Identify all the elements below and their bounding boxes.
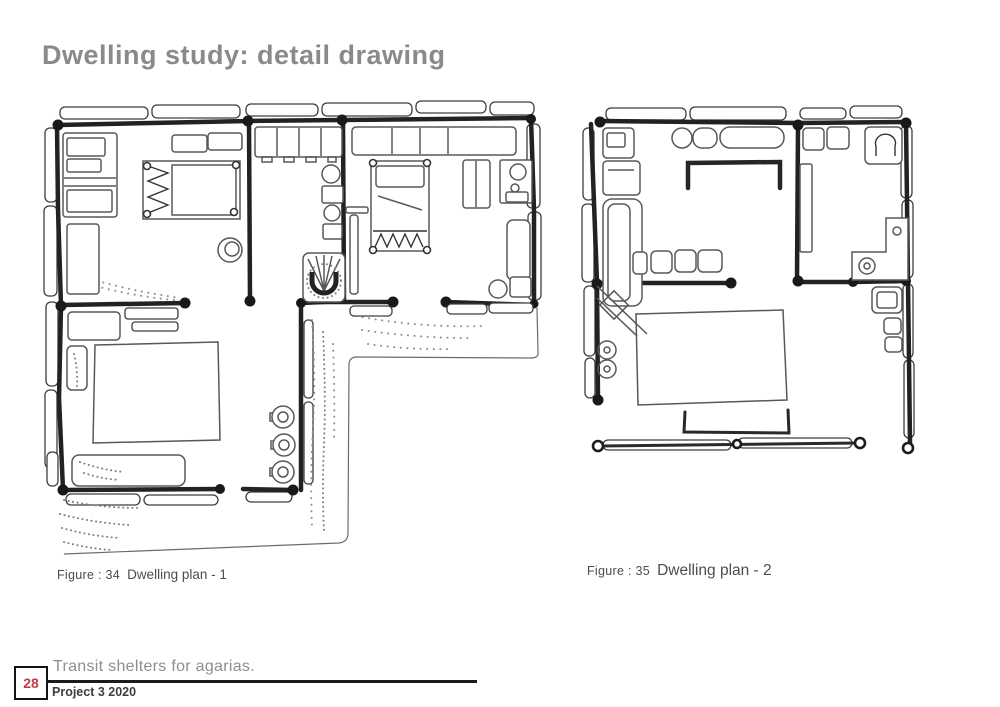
wash-counter (852, 218, 908, 280)
figure-label: Dwelling plan - 2 (657, 562, 772, 580)
wardrobe (63, 133, 117, 217)
footer-rule (46, 680, 477, 683)
stool (218, 238, 242, 262)
cabinet (67, 224, 99, 294)
figure-caption-1: Figure : 34 Dwelling plan - 1 (57, 567, 227, 582)
cooking-pots (270, 406, 295, 483)
tall-cabinet (507, 220, 530, 280)
dwelling-plan-1-drawing (30, 88, 560, 568)
corridor-furniture (255, 127, 345, 302)
screen-partition (350, 215, 358, 294)
floor-mat (636, 310, 787, 405)
floor-mat (93, 342, 220, 443)
figure-number: Figure : 34 (57, 568, 120, 582)
bed-vertical (370, 160, 431, 254)
bed (143, 161, 240, 219)
pot (324, 205, 340, 221)
pot (489, 280, 507, 298)
bedroom-1-furniture (63, 133, 242, 294)
dwelling-plan-2-drawing (575, 95, 930, 510)
project-title: Transit shelters for agarias. (53, 658, 255, 676)
door-leaf (800, 164, 812, 252)
living-room-furniture (67, 308, 295, 486)
page-title: Dwelling study: detail drawing (42, 40, 446, 71)
figure-label: Dwelling plan - 1 (127, 567, 227, 582)
sofa (672, 127, 784, 148)
bench (684, 410, 789, 433)
living-room-furniture (603, 127, 784, 306)
kitchen-bath-furniture (800, 127, 908, 352)
pot (322, 165, 340, 183)
wardrobe-column (603, 128, 642, 306)
figure-caption-2: Figure : 35 Dwelling plan - 2 (587, 562, 772, 580)
page-number-box: 28 (14, 666, 48, 700)
document-page: Dwelling study: detail drawing (0, 0, 1000, 707)
toilet (865, 127, 902, 164)
sofa (172, 133, 242, 152)
low-table (688, 162, 780, 188)
bedroom-2-furniture (346, 127, 533, 316)
long-shelf (352, 127, 516, 155)
desk (500, 160, 532, 203)
low-table (346, 207, 368, 213)
court-furniture (597, 286, 789, 433)
shelf (68, 312, 120, 340)
bench-bottom (72, 455, 185, 486)
figure-number: Figure : 35 (587, 564, 650, 578)
stove (303, 253, 345, 302)
cushion-row (633, 250, 722, 274)
project-subtitle: Project 3 2020 (52, 685, 136, 699)
stipple-texture (60, 272, 484, 550)
page-number: 28 (23, 675, 39, 691)
